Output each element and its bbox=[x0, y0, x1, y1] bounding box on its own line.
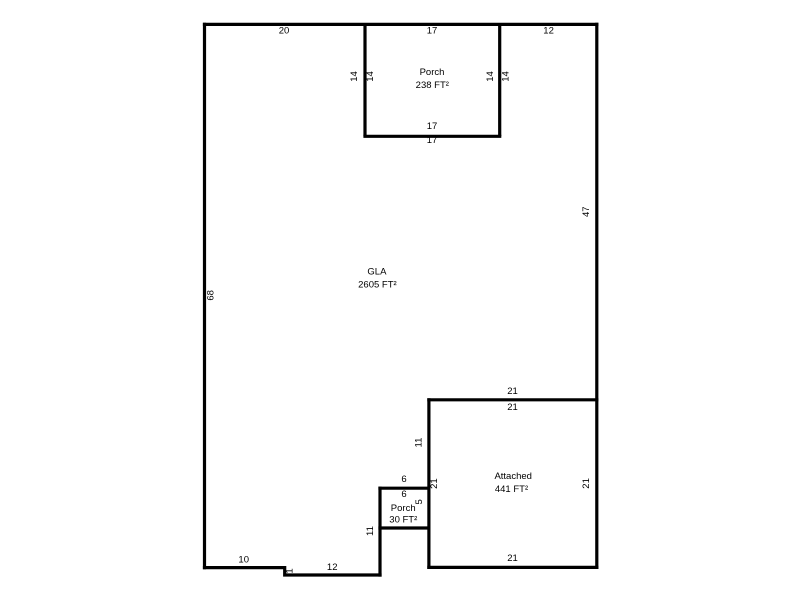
svg-text:Porch: Porch bbox=[391, 503, 416, 514]
svg-text:Porch: Porch bbox=[420, 67, 445, 78]
svg-text:2605 FT²: 2605 FT² bbox=[358, 279, 397, 290]
svg-text:14: 14 bbox=[501, 71, 512, 82]
svg-text:441 FT²: 441 FT² bbox=[495, 484, 528, 495]
svg-text:21: 21 bbox=[507, 386, 518, 397]
svg-text:47: 47 bbox=[581, 206, 592, 217]
svg-text:17: 17 bbox=[427, 121, 438, 132]
svg-text:20: 20 bbox=[279, 26, 290, 37]
svg-text:11: 11 bbox=[413, 438, 424, 448]
svg-text:68: 68 bbox=[205, 290, 216, 301]
svg-text:1: 1 bbox=[285, 568, 296, 573]
svg-text:238 FT²: 238 FT² bbox=[416, 80, 449, 91]
svg-text:21: 21 bbox=[581, 478, 592, 489]
svg-text:14: 14 bbox=[485, 71, 496, 82]
svg-text:11: 11 bbox=[365, 526, 376, 536]
svg-text:14: 14 bbox=[365, 71, 376, 82]
svg-text:10: 10 bbox=[238, 554, 249, 565]
svg-text:GLA: GLA bbox=[367, 267, 387, 278]
svg-text:6: 6 bbox=[401, 489, 406, 500]
svg-text:17: 17 bbox=[427, 135, 438, 146]
svg-text:21: 21 bbox=[507, 553, 518, 564]
svg-text:14: 14 bbox=[349, 71, 360, 82]
svg-text:12: 12 bbox=[327, 562, 338, 573]
svg-text:21: 21 bbox=[507, 402, 518, 413]
svg-text:21: 21 bbox=[429, 478, 440, 489]
svg-text:Attached: Attached bbox=[494, 471, 532, 482]
svg-text:30 FT²: 30 FT² bbox=[389, 514, 417, 525]
svg-text:6: 6 bbox=[401, 474, 406, 485]
svg-text:12: 12 bbox=[543, 26, 554, 37]
svg-text:17: 17 bbox=[427, 26, 438, 37]
